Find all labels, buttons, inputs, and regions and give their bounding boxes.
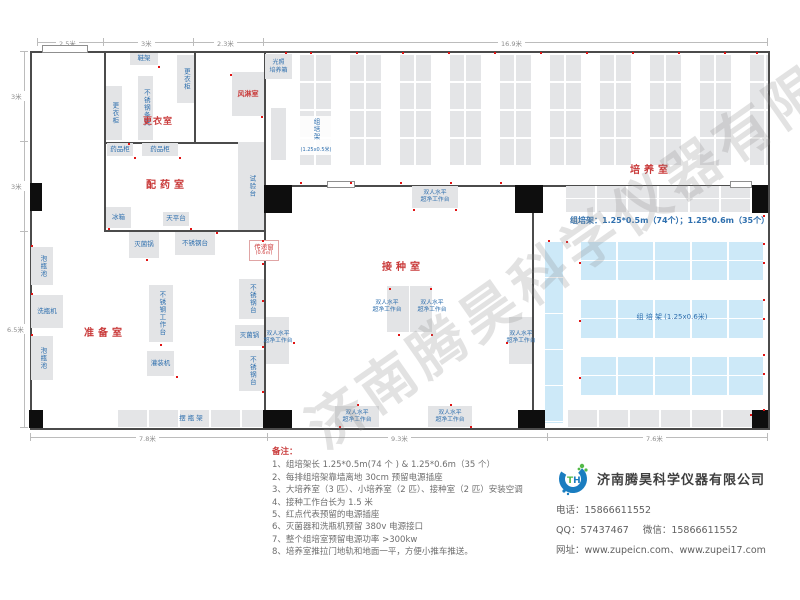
power-outlet-dot <box>160 344 162 346</box>
air-shower: 风淋室 <box>232 72 264 116</box>
wall <box>194 51 196 142</box>
prep-room-label: 准备室 <box>84 324 126 339</box>
power-outlet-dot <box>179 157 181 159</box>
power-outlet-dot <box>31 293 33 295</box>
power-outlet-dot <box>450 182 452 184</box>
power-outlet-dot <box>190 228 192 230</box>
balance-table: 天平台 <box>163 212 189 226</box>
svg-text:TH: TH <box>567 476 581 486</box>
soak-pool: 泡瓶池 <box>31 247 53 285</box>
power-outlet-dot <box>389 288 391 290</box>
power-outlet-dot <box>398 334 400 336</box>
culture-rack <box>400 55 431 165</box>
power-outlet-dot <box>448 52 450 54</box>
power-outlet-dot <box>262 240 264 242</box>
clean-bench-label: 双人水平 超净工作台 <box>366 300 408 314</box>
power-outlet-dot <box>750 414 752 416</box>
power-outlet-dot <box>230 74 232 76</box>
dim-tick <box>767 433 768 441</box>
culture-rack <box>650 55 681 165</box>
power-outlet-dot <box>579 320 581 322</box>
power-outlet-dot <box>293 342 295 344</box>
power-outlet-dot <box>108 228 110 230</box>
dim-top-3: 2.3米 <box>214 38 237 48</box>
column <box>752 410 768 428</box>
power-outlet-dot <box>566 241 568 243</box>
locker: 更衣柜 <box>177 55 194 103</box>
wall <box>532 187 534 428</box>
company-website: 网址：www.zupeicn.com、www.zupei17.com <box>556 542 791 556</box>
shoe-rack: 鞋架 <box>130 53 158 65</box>
dim-left-2: 3米 <box>8 181 25 191</box>
dim-tick <box>547 433 548 441</box>
power-outlet-dot <box>763 215 765 217</box>
power-outlet-dot <box>413 209 415 211</box>
dim-tick <box>103 38 104 46</box>
dressing-room-label: 更衣室 <box>143 114 173 127</box>
culture-rack-spec: 组培架：1.25*0.5m（74个）；1.25*0.6m（35个） <box>570 215 769 226</box>
column <box>752 185 768 213</box>
dim-tick <box>20 51 28 52</box>
culture-rack <box>500 55 531 165</box>
dim-top-2: 3米 <box>138 38 155 48</box>
soak-pool: 泡瓶池 <box>31 336 53 380</box>
power-outlet-dot <box>158 66 160 68</box>
culture-rack <box>750 55 768 165</box>
power-outlet-dot <box>356 52 358 54</box>
dim-tick <box>20 231 28 232</box>
power-outlet-dot <box>402 52 404 54</box>
column <box>29 410 43 428</box>
dim-tick <box>30 433 31 441</box>
ss-workbench: 不锈钢工作台 <box>149 285 173 342</box>
power-outlet-dot <box>548 240 550 242</box>
column <box>30 183 42 211</box>
culture-rack-blue <box>581 357 763 395</box>
power-outlet-dot <box>431 334 433 336</box>
power-outlet-dot <box>763 409 765 411</box>
dim-tick <box>20 141 28 142</box>
filling-machine: 灌装机 <box>147 351 174 376</box>
power-outlet-dot <box>262 300 264 302</box>
test-bench: 试验台 <box>238 142 264 230</box>
dim-bottom-2: 9.3米 <box>388 433 411 443</box>
power-outlet-dot <box>285 52 287 54</box>
power-outlet-dot <box>300 182 302 184</box>
ss-bench: 不锈钢条凳 <box>138 76 153 140</box>
power-outlet-dot <box>763 299 765 301</box>
culture-rack-label: 组培架 (1.25x0.5米) <box>297 116 335 155</box>
bottle-rack-label: 摆 瓶 架 <box>118 414 264 422</box>
power-outlet-dot <box>262 346 264 348</box>
clean-bench: 双人水平 超净工作台 <box>335 406 379 427</box>
power-outlet-dot <box>470 426 472 428</box>
light-incubator <box>271 108 286 160</box>
inoculation-room-label: 接种室 <box>382 258 424 273</box>
note-item: 1、组培架长 1.25*0.5m(74 个 ) & 1.25*0.6m（35 个… <box>272 459 572 471</box>
clean-bench-label: 双人水平 超净工作台 <box>411 300 453 314</box>
power-outlet-dot <box>678 52 680 54</box>
culture-rack <box>600 55 631 165</box>
dim-top-4: 16.9米 <box>498 38 525 48</box>
power-outlet-dot <box>763 243 765 245</box>
note-item: 2、每排组培架靠墙离地 30cm 预留电源插座 <box>272 472 572 484</box>
power-outlet-dot <box>506 342 508 344</box>
power-outlet-dot <box>146 259 148 261</box>
light-incubator: 光照 培养箱 <box>265 54 292 79</box>
power-outlet-dot <box>261 116 263 118</box>
power-outlet-dot <box>494 52 496 54</box>
power-outlet-dot <box>579 377 581 379</box>
power-outlet-dot <box>400 182 402 184</box>
power-outlet-dot <box>455 209 457 211</box>
culture-door <box>730 181 752 188</box>
note-item: 7、整个组培室预留电源功率 >300kw <box>272 534 572 546</box>
power-outlet-dot <box>763 354 765 356</box>
bottle-washer: 洗瓶机 <box>31 295 63 328</box>
power-outlet-dot <box>176 376 178 378</box>
power-outlet-dot <box>216 232 218 234</box>
clean-bench: 双人水平 超净工作台 <box>412 186 458 208</box>
notes-title: 备注： <box>272 446 572 458</box>
column <box>515 185 543 213</box>
culture-rack-blue <box>545 242 563 423</box>
company-phone: 电话：15866611552 <box>556 502 791 516</box>
power-outlet-dot <box>756 52 758 54</box>
clean-bench: 双人水平 超净工作台 <box>428 406 472 427</box>
clean-bench-label: 超净工作台 <box>421 197 450 204</box>
culture-rack-blue-label: 组 培 架 (1.25x0.6米) <box>581 312 763 322</box>
culture-rack-blue <box>581 242 763 280</box>
dim-tick <box>267 433 268 441</box>
power-outlet-dot <box>339 426 341 428</box>
culture-rack <box>568 410 752 427</box>
power-outlet-dot <box>128 143 130 145</box>
culture-rack <box>450 55 481 165</box>
pass-window: 传递窗 (0.6㎡) <box>249 240 279 261</box>
power-outlet-dot <box>632 52 634 54</box>
medicine-cabinet: 药品柜 <box>142 143 178 156</box>
note-item: 6、灭菌器和洗瓶机预留 380v 电源接口 <box>272 521 572 533</box>
power-outlet-dot <box>540 52 542 54</box>
culture-room-label: 培养室 <box>630 161 672 176</box>
company-block: TH 济南腾昊科学仪器有限公司 电话：15866611552 QQ：574374… <box>556 460 791 556</box>
company-wechat: 微信：15866611552 <box>643 525 738 536</box>
dim-tick <box>20 427 28 428</box>
note-item: 4、接种工作台长为 1.5 米 <box>272 497 572 509</box>
ss-table: 不锈钢台 <box>175 232 215 255</box>
clean-bench-label: 双人水平 <box>423 190 446 197</box>
culture-rack <box>350 55 381 165</box>
power-outlet-dot <box>763 262 765 264</box>
culture-rack <box>550 55 581 165</box>
locker: 更衣柜 <box>106 86 122 140</box>
pass-window-size: (0.6㎡) <box>256 251 273 257</box>
dim-left-1: 3米 <box>8 91 25 101</box>
company-name: 济南腾昊科学仪器有限公司 <box>597 469 765 488</box>
company-qq: QQ：57437467 <box>556 525 629 536</box>
note-item: 8、培养室推拉门地轨和地面一平，方便小推车推送。 <box>272 546 572 558</box>
ss-table: 不锈钢台 <box>239 279 264 319</box>
entry-door <box>42 45 88 53</box>
power-outlet-dot <box>134 157 136 159</box>
dim-line-left <box>24 51 25 428</box>
power-outlet-dot <box>579 262 581 264</box>
power-outlet-dot <box>724 52 726 54</box>
floorplan-page: 2.5米 3米 2.3米 16.9米 3米 3米 6.5米 7.8米 9.3米 … <box>0 0 800 600</box>
power-outlet-dot <box>763 318 765 320</box>
power-outlet-dot <box>500 182 502 184</box>
column <box>264 185 292 213</box>
power-outlet-dot <box>262 263 264 265</box>
dim-tick <box>263 38 264 46</box>
power-outlet-dot <box>357 404 359 406</box>
power-outlet-dot <box>31 334 33 336</box>
note-item: 3、大培养室（3 匹）、小培养室（2 匹）、接种室（2 匹）安装空调 <box>272 484 572 496</box>
culture-rack <box>700 55 731 165</box>
power-outlet-dot <box>350 182 352 184</box>
dim-bottom-1: 7.8米 <box>136 433 159 443</box>
dim-tick <box>767 38 768 46</box>
power-outlet-dot <box>430 288 432 290</box>
column <box>518 410 545 428</box>
power-outlet-dot <box>763 373 765 375</box>
power-outlet-dot <box>450 404 452 406</box>
notes-block: 备注： 1、组培架长 1.25*0.5m(74 个 ) & 1.25*0.6m（… <box>272 446 572 559</box>
note-item: 5、红点代表预留的电源插座 <box>272 509 572 521</box>
power-outlet-dot <box>262 391 264 393</box>
culture-rack <box>566 186 753 212</box>
power-outlet-dot <box>586 52 588 54</box>
dim-tick <box>193 38 194 46</box>
dim-left-3: 6.5米 <box>4 324 27 334</box>
column <box>263 410 292 428</box>
sterilizer: 灭菌锅 <box>129 232 159 258</box>
ss-table: 不锈钢台 <box>239 350 264 391</box>
company-qq-wechat: QQ：57437467微信：15866611552 <box>556 522 791 536</box>
dim-bottom-3: 7.6米 <box>643 433 666 443</box>
fridge: 冰箱 <box>106 207 131 228</box>
power-outlet-dot <box>310 52 312 54</box>
power-outlet-dot <box>31 245 33 247</box>
pharmacy-room-label: 配药室 <box>146 176 188 191</box>
company-logo-icon: TH <box>556 460 592 496</box>
dim-tick <box>37 38 38 46</box>
